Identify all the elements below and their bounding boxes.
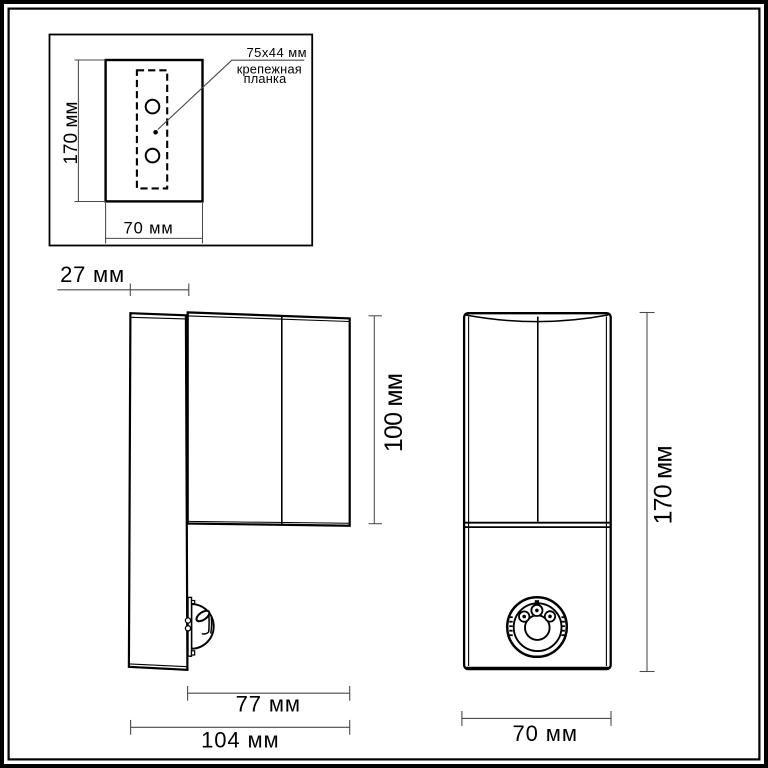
- svg-text:70 мм: 70 мм: [513, 721, 578, 746]
- svg-text:100 мм: 100 мм: [380, 374, 408, 452]
- svg-text:27 мм: 27 мм: [60, 262, 125, 287]
- svg-text:75x44 мм: 75x44 мм: [246, 45, 307, 60]
- svg-text:104 мм: 104 мм: [201, 727, 279, 752]
- svg-text:70 мм: 70 мм: [124, 219, 174, 237]
- svg-text:170 мм: 170 мм: [649, 446, 677, 524]
- svg-text:77 мм: 77 мм: [236, 692, 301, 717]
- svg-text:170 мм: 170 мм: [61, 102, 82, 165]
- svg-text:планка: планка: [244, 71, 287, 86]
